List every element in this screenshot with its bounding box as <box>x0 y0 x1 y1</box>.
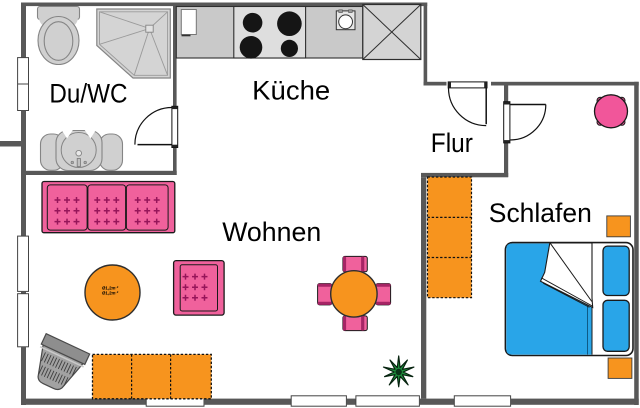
svg-text:Wohnen: Wohnen <box>222 217 321 247</box>
svg-text:Flur: Flur <box>431 128 473 158</box>
svg-text:Küche: Küche <box>252 76 330 106</box>
svg-text:Du/WC: Du/WC <box>49 79 127 109</box>
svg-text:Ø1,2m·²: Ø1,2m·² <box>102 291 119 296</box>
svg-text:Schlafen: Schlafen <box>489 198 592 228</box>
